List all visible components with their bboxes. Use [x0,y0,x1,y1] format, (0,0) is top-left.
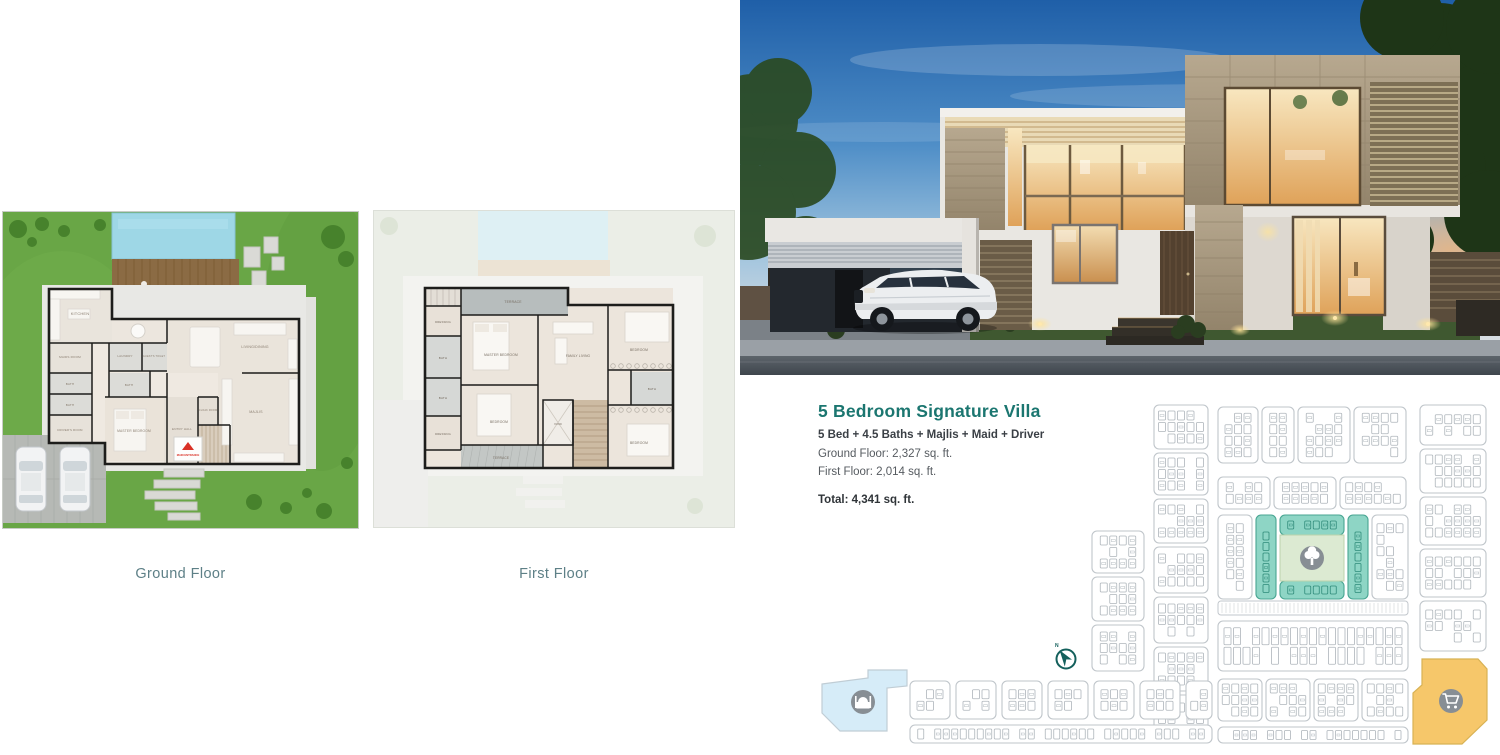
central-park [1280,535,1344,581]
room-label-bath: BATH [648,387,656,391]
north-arrow-icon: N [1055,643,1076,669]
room-label-bath: BATH [439,396,447,400]
room-label-bath: BATH [66,403,75,407]
driveway [2,435,106,523]
ground-floor-label: Ground Floor [2,566,359,582]
room-label-majlis: MAJLIS [249,410,263,414]
room-label-family-living: FAMILY LIVING [566,354,591,358]
room-label-bath: BATH [66,382,75,386]
master-plan-drawing: N [810,393,1500,750]
first-floor-plan-drawing: TERRACE DRESSING BATH BATH DRESSING MAST… [373,210,735,528]
room-label-entry-hall: ENTRY HALL [172,427,192,431]
room-label-guest-toilet: GUEST'S TOILET [143,355,166,358]
master-plan-blocks [910,405,1486,743]
first-floor-plan: TERRACE DRESSING BATH BATH DRESSING MAST… [373,210,735,528]
villa-photo [740,0,1500,380]
room-label-void: VOID [554,422,563,426]
room-label-bedroom: BEDROOM [630,441,648,445]
mosque-parcel [822,670,907,731]
lower-window [1053,225,1117,283]
ground-floor-plan-drawing: MAIN ENTRANCE KITCHEN MAIDS ROOM BATH BA… [2,211,359,529]
villa-photo-render [740,0,1500,375]
room-label-bath: BATH [125,383,134,387]
shopping-cart-icon [1439,689,1463,713]
room-label-dressing: DRESSING [435,432,451,436]
car [16,447,46,511]
slit-window [1008,128,1022,226]
room-label-master-bedroom: MASTER BEDROOM [484,353,518,357]
room-label-maids-room: MAIDS ROOM [59,355,81,359]
upper-window [1225,88,1360,205]
street [740,356,1500,375]
room-label-terrace: TERRACE [493,456,509,460]
louver-screen [1370,82,1458,206]
room-label-bath: BATH [439,356,447,360]
room-label-bedroom: BEDROOM [630,348,648,352]
ground-floor-plan: MAIN ENTRANCE KITCHEN MAIDS ROOM BATH BA… [2,211,359,529]
room-label-main-entrance: MAIN ENTRANCE [177,453,200,457]
room-label-terrace: TERRACE [504,300,522,304]
room-label-living-dining: LIVING/DINING [241,345,268,349]
room-label-drivers-room: DRIVER'S ROOM [57,428,83,432]
car [60,447,90,511]
room-label-cloak-room: CLOAK ROOM [199,409,217,412]
room-label-kitchen: KITCHEN [71,311,90,316]
balcony-windows [1025,145,1185,230]
first-floor-label: First Floor [373,566,735,582]
room-label-dressing: DRESSING [435,320,451,324]
retail-parcel [1413,659,1487,744]
bedroom-window [1293,217,1385,315]
north-label: N [1055,643,1059,649]
main-entrance-marker: MAIN ENTRANCE [174,437,202,461]
room-label-bedroom: BEDROOM [490,420,508,424]
room-label-master-bedroom: MASTER BEDROOM [117,429,151,433]
master-plan-map: N [810,393,1500,755]
front-door [1160,231,1194,315]
room-label-laundry: LAUNDRY [117,354,132,358]
